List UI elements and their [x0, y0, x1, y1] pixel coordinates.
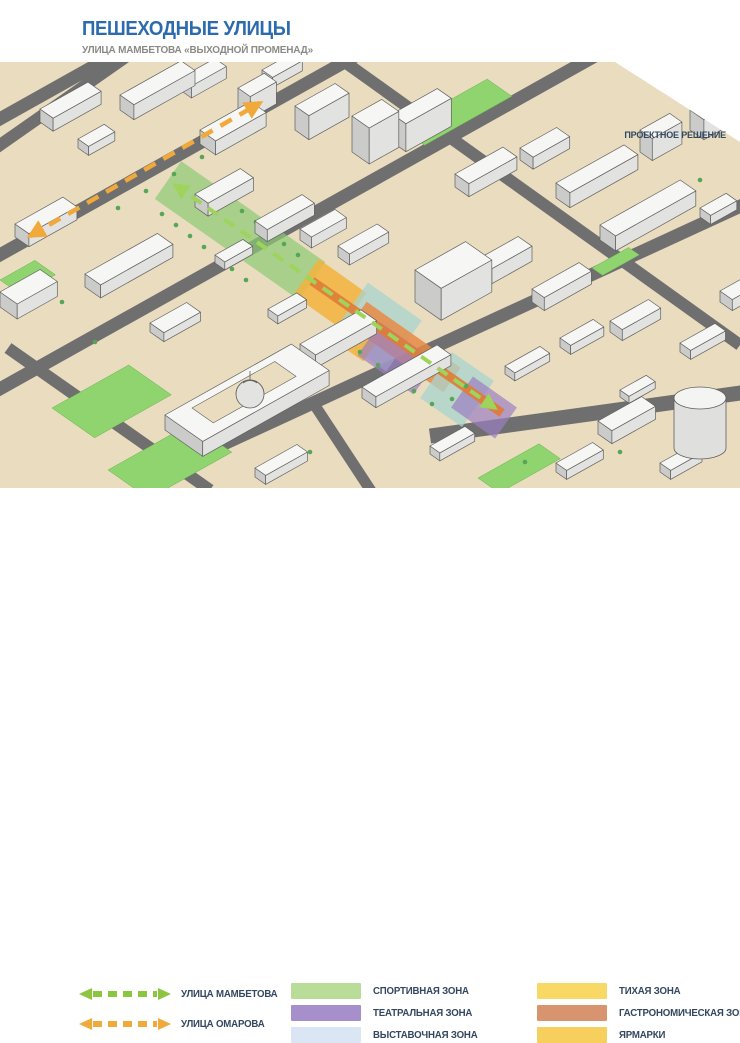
- legend-street-label: УЛИЦА МАМБЕТОВА: [181, 988, 277, 1000]
- slide-header: ПЕШЕХОДНЫЕ УЛИЦЫ УЛИЦА МАМБЕТОВА «ВЫХОДН…: [82, 18, 325, 56]
- legend-zone-label: ЯРМАРКИ: [619, 1029, 665, 1041]
- fair-zone-swatch: [537, 1027, 607, 1043]
- page-subtitle: УЛИЦА МАМБЕТОВА «ВЫХОДНОЙ ПРОМЕНАД»: [82, 44, 313, 56]
- legend-zone-label: ГАСТРОНОМИЧЕСКАЯ ЗОНА: [619, 1007, 740, 1019]
- legend-zone-label: ТЕАТРАЛЬНАЯ ЗОНА: [373, 1007, 472, 1019]
- page-title: ПЕШЕХОДНЫЕ УЛИЦЫ: [82, 18, 308, 41]
- legend-zone-quiet: ТИХАЯ ЗОНА: [537, 983, 686, 999]
- legend-zone-gastro: ГАСТРОНОМИЧЕСКАЯ ЗОНА: [537, 1005, 740, 1021]
- quiet-zone-swatch: [537, 983, 607, 999]
- legend-street-omarova: УЛИЦА ОМАРОВА: [78, 1016, 272, 1032]
- city-map: ПРОЕКТНОЕ РЕШЕНИЕ: [0, 62, 740, 488]
- cylinder-building: [674, 387, 726, 459]
- legend-zone-sport: СПОРТИВНАЯ ЗОНА: [291, 983, 477, 999]
- orange-dashed-arrow-icon: [78, 1016, 172, 1032]
- legend-street-mambetova: УЛИЦА МАМБЕТОВА: [78, 986, 286, 1002]
- legend-zone-fair: ЯРМАРКИ: [537, 1027, 669, 1043]
- legend-zone-label: ТИХАЯ ЗОНА: [619, 985, 680, 997]
- exhibition-zone-swatch: [291, 1027, 361, 1043]
- legend: УЛИЦА МАМБЕТОВА УЛИЦА ОМАРОВА СПОРТИВНАЯ…: [0, 488, 740, 555]
- city-map-canvas: [0, 62, 740, 488]
- theatre-zone-swatch: [291, 1005, 361, 1021]
- legend-zone-exhibition: ВЫСТАВОЧНАЯ ЗОНА: [291, 1027, 487, 1043]
- legend-street-label: УЛИЦА ОМАРОВА: [181, 1018, 265, 1030]
- legend-zone-theatre: ТЕАТРАЛЬНАЯ ЗОНА: [291, 1005, 481, 1021]
- green-dashed-arrow-icon: [78, 986, 172, 1002]
- legend-zone-label: ВЫСТАВОЧНАЯ ЗОНА: [373, 1029, 478, 1041]
- legend-zone-label: СПОРТИВНАЯ ЗОНА: [373, 985, 469, 997]
- gastro-zone-swatch: [537, 1005, 607, 1021]
- corner-label: ПРОЕКТНОЕ РЕШЕНИЕ: [624, 130, 726, 141]
- sport-zone-swatch: [291, 983, 361, 999]
